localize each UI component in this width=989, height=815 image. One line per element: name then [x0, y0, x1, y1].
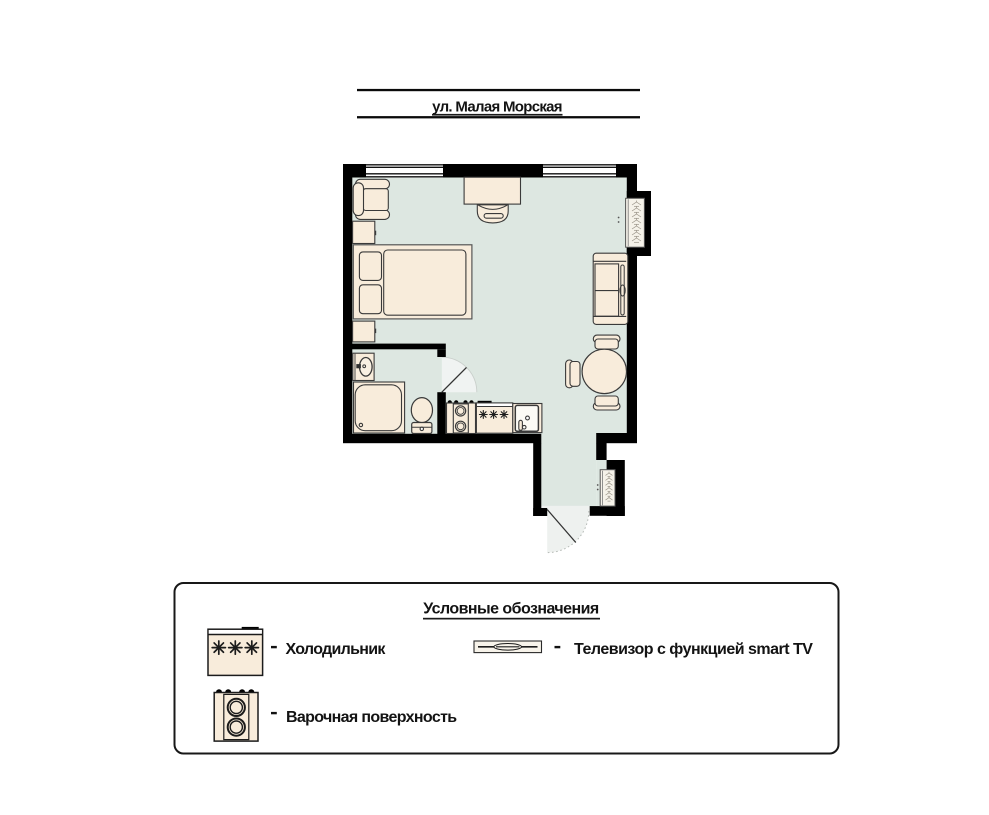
svg-text:Холодильник: Холодильник	[286, 641, 387, 658]
svg-text:Телевизор с функцией smart TV: Телевизор с функцией smart TV	[574, 641, 813, 658]
svg-text:Варочная поверхность: Варочная поверхность	[286, 709, 457, 726]
svg-text:Условные обозначения: Условные обозначения	[423, 601, 599, 618]
svg-text:ул. Малая Морская: ул. Малая Морская	[432, 99, 562, 116]
